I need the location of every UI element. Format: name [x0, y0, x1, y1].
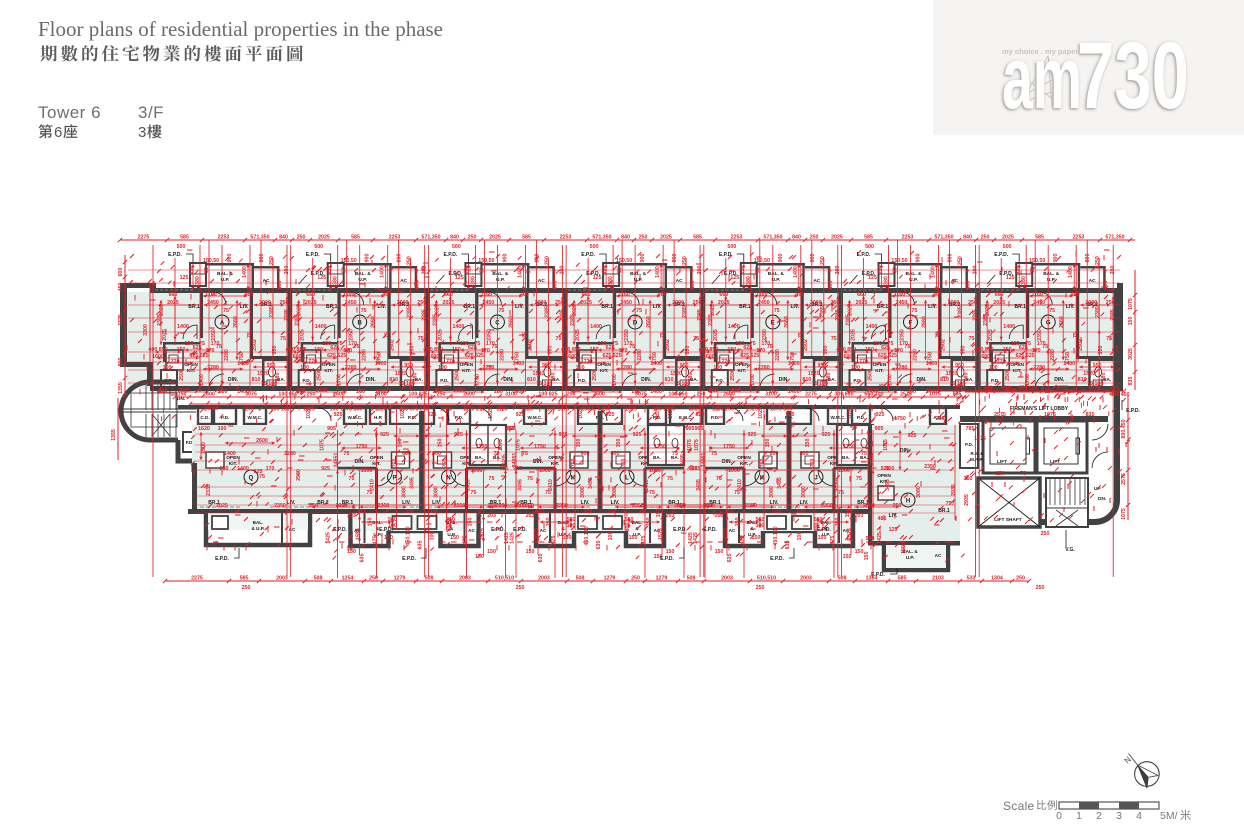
svg-text:75: 75 — [1042, 344, 1048, 350]
svg-text:75: 75 — [280, 336, 286, 342]
svg-text:150: 150 — [855, 549, 864, 555]
svg-text:250: 250 — [981, 234, 990, 240]
svg-text:75: 75 — [1020, 471, 1026, 477]
svg-text:& U.P.: & U.P. — [252, 526, 265, 531]
svg-text:BAL. &: BAL. & — [1043, 271, 1060, 277]
svg-text:2025: 2025 — [985, 304, 991, 316]
svg-text:1400: 1400 — [788, 389, 800, 395]
svg-text:2502: 2502 — [665, 339, 671, 351]
svg-text:2280: 2280 — [224, 349, 230, 361]
svg-text:2003: 2003 — [459, 575, 471, 581]
svg-text:635: 635 — [538, 554, 544, 563]
svg-text:635: 635 — [418, 541, 424, 550]
svg-text:925: 925 — [633, 432, 642, 438]
svg-text:150: 150 — [818, 535, 827, 541]
svg-text:925: 925 — [606, 412, 615, 418]
svg-text:800: 800 — [259, 254, 265, 263]
svg-text:475: 475 — [551, 536, 557, 545]
svg-text:1600: 1600 — [565, 354, 577, 360]
svg-text:650: 650 — [1001, 385, 1010, 391]
svg-text:1400: 1400 — [655, 266, 661, 278]
svg-text:2502: 2502 — [803, 339, 809, 351]
svg-text:835: 835 — [1086, 412, 1095, 418]
svg-text:250: 250 — [219, 389, 228, 395]
svg-text:1254: 1254 — [342, 575, 354, 581]
svg-text:FIREMAN'S LIFT LOBBY: FIREMAN'S LIFT LOBBY — [1010, 406, 1069, 412]
svg-text:1000: 1000 — [838, 468, 850, 474]
svg-text:DIN.: DIN. — [228, 377, 239, 383]
svg-text:100: 100 — [797, 532, 803, 541]
svg-text:450,100: 450,100 — [406, 526, 412, 545]
svg-text:925: 925 — [321, 466, 330, 472]
svg-text:905: 905 — [875, 426, 884, 432]
svg-text:810: 810 — [252, 377, 261, 383]
svg-text:890,450: 890,450 — [1121, 419, 1127, 438]
svg-text:H.R: H.R — [374, 415, 383, 420]
svg-text:Tower 6: Tower 6 — [38, 103, 101, 122]
svg-text:3325: 3325 — [118, 314, 124, 326]
svg-text:335: 335 — [797, 509, 806, 515]
svg-text:730: 730 — [1077, 23, 1189, 129]
svg-text:2350: 2350 — [274, 503, 286, 509]
svg-text:1160: 1160 — [756, 292, 768, 298]
svg-text:2350: 2350 — [556, 503, 568, 509]
svg-text:2253: 2253 — [1073, 234, 1085, 240]
svg-text:571,350: 571,350 — [421, 234, 440, 240]
svg-text:2003: 2003 — [721, 575, 733, 581]
svg-text:100 825: 100 825 — [538, 391, 557, 397]
svg-text:UP: UP — [1094, 486, 1101, 492]
svg-text:KIT.: KIT. — [324, 368, 333, 374]
svg-text:200: 200 — [828, 281, 834, 290]
svg-text:P.D.: P.D. — [578, 378, 586, 383]
svg-text:810: 810 — [665, 377, 674, 383]
svg-text:E.P.D.: E.P.D. — [402, 556, 416, 562]
svg-text:KIT.: KIT. — [462, 368, 471, 374]
svg-text:150: 150 — [735, 341, 744, 347]
svg-text:810: 810 — [940, 377, 949, 383]
svg-text:925: 925 — [748, 432, 757, 438]
svg-text:75: 75 — [1106, 336, 1112, 342]
svg-text:2350: 2350 — [745, 503, 757, 509]
svg-text:DIN.: DIN. — [722, 459, 733, 465]
svg-text:1380: 1380 — [884, 276, 890, 288]
svg-text:1250: 1250 — [958, 256, 964, 268]
svg-text:1100 250: 1100 250 — [712, 407, 734, 413]
svg-text:E.P.D.: E.P.D. — [581, 252, 595, 258]
svg-text:BAL.: BAL. — [253, 520, 264, 525]
svg-text:721: 721 — [725, 509, 734, 515]
svg-text:905: 905 — [506, 426, 515, 432]
svg-text:75: 75 — [367, 490, 373, 496]
svg-text:905: 905 — [327, 426, 336, 432]
svg-text:AC: AC — [729, 528, 736, 533]
svg-text:585: 585 — [180, 234, 189, 240]
svg-text:1304: 1304 — [991, 575, 1003, 581]
svg-text:350: 350 — [964, 476, 973, 482]
svg-text:3080: 3080 — [916, 486, 922, 498]
svg-text:AC: AC — [468, 528, 475, 533]
svg-text:Floor plans of residential pro: Floor plans of residential properties in… — [38, 17, 443, 41]
svg-text:900: 900 — [502, 254, 508, 263]
svg-text:1025: 1025 — [668, 407, 674, 419]
svg-text:2500: 2500 — [179, 369, 185, 381]
svg-text:200: 200 — [552, 281, 558, 290]
svg-text:800: 800 — [672, 254, 678, 263]
svg-text:E.P.D.: E.P.D. — [673, 527, 687, 533]
svg-text:E.P.D.: E.P.D. — [168, 252, 182, 258]
svg-text:250: 250 — [639, 234, 648, 240]
svg-text:2275: 2275 — [138, 234, 150, 240]
svg-text:450,100: 450,100 — [584, 526, 590, 545]
svg-text:2025: 2025 — [159, 304, 165, 316]
svg-text:3495: 3495 — [502, 454, 508, 466]
svg-text:150: 150 — [598, 341, 607, 347]
svg-text:1380: 1380 — [333, 276, 339, 288]
svg-text:950: 950 — [955, 363, 964, 369]
svg-text:335: 335 — [773, 509, 782, 515]
svg-text:100: 100 — [218, 426, 227, 432]
svg-text:1025: 1025 — [578, 407, 584, 419]
svg-text:75 100: 75 100 — [812, 381, 828, 387]
svg-text:460: 460 — [520, 292, 529, 298]
svg-text:1380: 1380 — [746, 276, 752, 288]
svg-text:75: 75 — [831, 336, 837, 342]
svg-text:250: 250 — [810, 234, 819, 240]
svg-text:650 100: 650 100 — [1018, 385, 1037, 391]
svg-text:250: 250 — [893, 503, 902, 509]
svg-text:75: 75 — [636, 308, 642, 314]
svg-text:2575: 2575 — [1056, 385, 1068, 391]
svg-text:2385: 2385 — [1095, 306, 1101, 318]
svg-text:508: 508 — [576, 575, 585, 581]
svg-text:75: 75 — [216, 344, 222, 350]
svg-text:2500: 2500 — [317, 369, 323, 381]
svg-text:75: 75 — [905, 344, 911, 350]
svg-text:75: 75 — [489, 476, 495, 482]
svg-text:2600: 2600 — [316, 388, 328, 394]
svg-text:150,50: 150,50 — [754, 258, 770, 264]
svg-text:450,100: 450,100 — [773, 526, 779, 545]
svg-text:660: 660 — [995, 292, 1004, 298]
svg-text:2350: 2350 — [900, 329, 906, 341]
svg-text:460: 460 — [245, 292, 254, 298]
svg-text:BA.: BA. — [653, 455, 661, 460]
svg-text:1600: 1600 — [703, 354, 715, 360]
svg-text:810: 810 — [527, 377, 536, 383]
svg-text:2003: 2003 — [538, 575, 550, 581]
svg-text:925: 925 — [876, 412, 885, 418]
svg-text:2025: 2025 — [1002, 234, 1014, 240]
svg-text:1575: 1575 — [723, 528, 729, 540]
svg-text:2935: 2935 — [964, 494, 970, 506]
svg-text:DIN.: DIN. — [366, 377, 377, 383]
svg-text:DIN.: DIN. — [779, 377, 790, 383]
svg-text:571,350: 571,350 — [934, 234, 953, 240]
svg-text:250: 250 — [242, 585, 251, 591]
svg-text:N: N — [446, 476, 450, 482]
svg-text:1075: 1075 — [1044, 412, 1056, 418]
svg-text:AC: AC — [289, 527, 296, 532]
svg-text:2025: 2025 — [831, 234, 843, 240]
svg-text:1520: 1520 — [946, 371, 958, 377]
svg-text:150: 150 — [629, 535, 638, 541]
svg-text:75: 75 — [1073, 332, 1079, 338]
svg-text:508: 508 — [425, 575, 434, 581]
svg-text:W.M.C.: W.M.C. — [527, 415, 542, 420]
svg-text:150: 150 — [450, 535, 459, 541]
svg-text:925: 925 — [380, 432, 389, 438]
svg-text:250: 250 — [632, 389, 641, 395]
svg-text:840: 840 — [963, 234, 972, 240]
svg-text:533: 533 — [967, 575, 976, 581]
svg-text:250: 250 — [297, 234, 306, 240]
svg-text:950: 950 — [404, 363, 413, 369]
svg-text:150: 150 — [384, 535, 393, 541]
svg-text:1025: 1025 — [848, 407, 854, 419]
svg-text:585: 585 — [864, 234, 873, 240]
svg-text:1520: 1520 — [808, 371, 820, 377]
svg-text:1160: 1160 — [894, 292, 906, 298]
svg-text:203: 203 — [715, 513, 724, 519]
svg-text:1400: 1400 — [237, 389, 249, 395]
svg-text:1380: 1380 — [470, 276, 476, 288]
svg-text:585: 585 — [522, 234, 531, 240]
svg-text:571,350: 571,350 — [250, 234, 269, 240]
svg-text:3300: 3300 — [143, 324, 149, 336]
svg-text:500: 500 — [452, 244, 461, 250]
svg-text:840: 840 — [792, 234, 801, 240]
svg-text:1000: 1000 — [728, 468, 740, 474]
svg-text:125: 125 — [455, 275, 464, 281]
svg-text:75: 75 — [545, 490, 551, 496]
svg-text:250: 250 — [525, 503, 534, 509]
svg-text:203: 203 — [347, 513, 356, 519]
svg-text:900: 900 — [916, 254, 922, 263]
svg-text:800: 800 — [810, 254, 816, 263]
svg-text:250: 250 — [631, 575, 640, 581]
svg-text:500: 500 — [177, 244, 186, 250]
svg-text:2500: 2500 — [454, 369, 460, 381]
svg-text:75: 75 — [498, 308, 504, 314]
svg-text:1250: 1250 — [1095, 256, 1101, 268]
svg-text:150: 150 — [185, 341, 194, 347]
svg-text:BAL. &: BAL. & — [906, 271, 923, 277]
svg-text:5M/: 5M/ — [1160, 810, 1178, 822]
svg-text:1600: 1600 — [152, 354, 164, 360]
svg-text:2500: 2500 — [1005, 369, 1011, 381]
svg-text:am: am — [1002, 28, 1082, 127]
svg-text:my choice . my paper: my choice . my paper — [1002, 47, 1078, 56]
svg-text:1425: 1425 — [877, 532, 883, 544]
svg-text:34951: 34951 — [701, 453, 707, 468]
svg-text:2025: 2025 — [572, 304, 578, 316]
svg-text:U.P.: U.P. — [906, 555, 914, 560]
svg-text:200: 200 — [690, 281, 696, 290]
svg-text:75: 75 — [491, 344, 497, 350]
svg-text:721: 721 — [536, 509, 545, 515]
svg-text:1160: 1160 — [618, 292, 630, 298]
svg-text:2350: 2350 — [211, 329, 217, 341]
svg-text:1075: 1075 — [1088, 385, 1100, 391]
svg-text:1225: 1225 — [375, 407, 387, 413]
svg-text:508: 508 — [838, 575, 847, 581]
svg-text:585: 585 — [898, 575, 907, 581]
svg-text:KIT.: KIT. — [600, 368, 609, 374]
svg-text:200: 200 — [966, 281, 972, 290]
svg-text:950: 950 — [680, 363, 689, 369]
svg-text:1025: 1025 — [758, 407, 764, 419]
svg-text:1425: 1425 — [504, 532, 510, 544]
svg-text:2385: 2385 — [407, 306, 413, 318]
svg-text:75: 75 — [693, 336, 699, 342]
svg-text:797: 797 — [946, 501, 955, 507]
svg-text:150,50: 150,50 — [891, 258, 907, 264]
svg-text:1520: 1520 — [670, 371, 682, 377]
svg-text:840: 840 — [450, 234, 459, 240]
svg-text:75: 75 — [223, 308, 229, 314]
svg-text:1355: 1355 — [111, 429, 117, 441]
svg-text:1750: 1750 — [894, 416, 906, 422]
svg-text:905: 905 — [686, 426, 695, 432]
svg-text:75 100: 75 100 — [399, 381, 415, 387]
svg-text:2385: 2385 — [682, 306, 688, 318]
svg-text:2253: 2253 — [218, 234, 230, 240]
svg-text:250: 250 — [907, 389, 916, 395]
svg-text:2350: 2350 — [349, 329, 355, 341]
svg-text:500: 500 — [1003, 244, 1012, 250]
svg-text:2280: 2280 — [637, 349, 643, 361]
svg-text:925: 925 — [428, 412, 437, 418]
svg-text:1380: 1380 — [1021, 276, 1027, 288]
svg-text:2350: 2350 — [1037, 329, 1043, 341]
svg-text:900: 900 — [365, 254, 371, 263]
svg-text:R.S. &: R.S. & — [971, 451, 985, 456]
svg-text:150: 150 — [666, 549, 675, 555]
svg-text:1250: 1250 — [820, 256, 826, 268]
svg-text:203: 203 — [487, 513, 496, 519]
svg-text:1520: 1520 — [257, 371, 269, 377]
svg-text:150,50: 150,50 — [203, 258, 219, 264]
svg-text:KIT.: KIT. — [738, 368, 747, 374]
svg-text:150: 150 — [487, 549, 496, 555]
svg-text:75: 75 — [247, 332, 253, 338]
svg-text:1400: 1400 — [650, 389, 662, 395]
svg-text:3495: 3495 — [680, 454, 686, 466]
svg-text:2025: 2025 — [848, 304, 854, 316]
svg-text:P.D.: P.D. — [711, 415, 719, 420]
svg-text:1925: 1925 — [746, 407, 758, 413]
svg-text:900: 900 — [778, 254, 784, 263]
svg-text:P.D.: P.D. — [716, 378, 724, 383]
svg-text:1575: 1575 — [658, 528, 664, 540]
svg-text:1160: 1160 — [343, 292, 355, 298]
svg-text:2025: 2025 — [300, 329, 306, 341]
svg-text:508: 508 — [687, 575, 696, 581]
svg-text:0: 0 — [1056, 810, 1062, 822]
svg-text:100: 100 — [608, 532, 614, 541]
svg-text:1400: 1400 — [1068, 266, 1074, 278]
svg-text:E.P.D.: E.P.D. — [306, 252, 320, 258]
svg-text:2350: 2350 — [624, 329, 630, 341]
svg-text:250: 250 — [516, 585, 525, 591]
svg-text:500: 500 — [727, 244, 736, 250]
svg-text:75: 75 — [856, 476, 862, 482]
svg-text:250: 250 — [1036, 585, 1045, 591]
svg-text:P.D.: P.D. — [440, 378, 448, 383]
svg-text:E.P.D.: E.P.D. — [215, 556, 229, 562]
svg-text:6: 6 — [54, 124, 62, 141]
svg-text:800: 800 — [948, 254, 954, 263]
svg-text:800: 800 — [447, 523, 453, 532]
svg-text:1025: 1025 — [306, 407, 312, 419]
svg-text:2600: 2600 — [454, 388, 466, 394]
svg-text:125: 125 — [1006, 275, 1015, 281]
svg-text:1575: 1575 — [356, 528, 362, 540]
svg-text:2560: 2560 — [296, 469, 302, 481]
svg-text:75: 75 — [259, 474, 265, 480]
svg-text:925: 925 — [822, 432, 831, 438]
svg-text:500: 500 — [590, 244, 599, 250]
svg-text:3: 3 — [138, 124, 146, 141]
svg-text:BAL. &: BAL. & — [492, 271, 509, 277]
svg-text:C.D.: C.D. — [200, 415, 209, 420]
svg-text:1355: 1355 — [118, 382, 124, 394]
svg-text:2025: 2025 — [710, 304, 716, 316]
svg-text:1380: 1380 — [195, 276, 201, 288]
svg-text:150: 150 — [805, 439, 811, 448]
svg-text:750: 750 — [393, 459, 399, 468]
svg-text:LIFT: LIFT — [997, 459, 1007, 465]
svg-text:M.R.R.: M.R.R. — [970, 457, 984, 462]
svg-text:1025: 1025 — [400, 407, 406, 419]
svg-text:BAL. &: BAL. & — [217, 271, 234, 277]
svg-text:1425: 1425 — [510, 532, 516, 544]
svg-text:500: 500 — [865, 244, 874, 250]
svg-text:150: 150 — [322, 341, 331, 347]
svg-text:475: 475 — [463, 536, 469, 545]
svg-text:2600: 2600 — [867, 388, 879, 394]
svg-text:150: 150 — [765, 439, 771, 448]
svg-text:P: P — [392, 476, 396, 482]
svg-text:LIFT SHAFT: LIFT SHAFT — [994, 517, 1022, 523]
svg-text:750: 750 — [571, 459, 577, 468]
svg-text:840: 840 — [621, 234, 630, 240]
svg-text:2025: 2025 — [851, 329, 857, 341]
svg-text:835: 835 — [1111, 385, 1120, 391]
svg-text:150: 150 — [1128, 317, 1134, 326]
svg-text:1075: 1075 — [1128, 298, 1134, 310]
svg-text:150,50: 150,50 — [478, 258, 494, 264]
svg-text:P.D.: P.D. — [857, 415, 865, 420]
svg-text:75: 75 — [969, 336, 975, 342]
svg-text:1000: 1000 — [471, 468, 483, 474]
svg-text:E.P.D.: E.P.D. — [443, 252, 457, 258]
svg-text:660: 660 — [582, 292, 591, 298]
svg-text:75 100: 75 100 — [536, 381, 552, 387]
svg-text:660: 660 — [306, 292, 315, 298]
svg-text:E.P.D.: E.P.D. — [660, 556, 674, 562]
svg-text:510,510: 510,510 — [757, 575, 776, 581]
svg-text:250: 250 — [996, 471, 1005, 477]
svg-text:KIT.: KIT. — [229, 461, 238, 467]
svg-text:2025: 2025 — [437, 329, 443, 341]
svg-text:571,350: 571,350 — [763, 234, 782, 240]
svg-text:75: 75 — [361, 308, 367, 314]
svg-text:1354: 1354 — [866, 575, 878, 581]
svg-text:150: 150 — [576, 439, 582, 448]
svg-text:Scale: Scale — [1003, 799, 1035, 813]
